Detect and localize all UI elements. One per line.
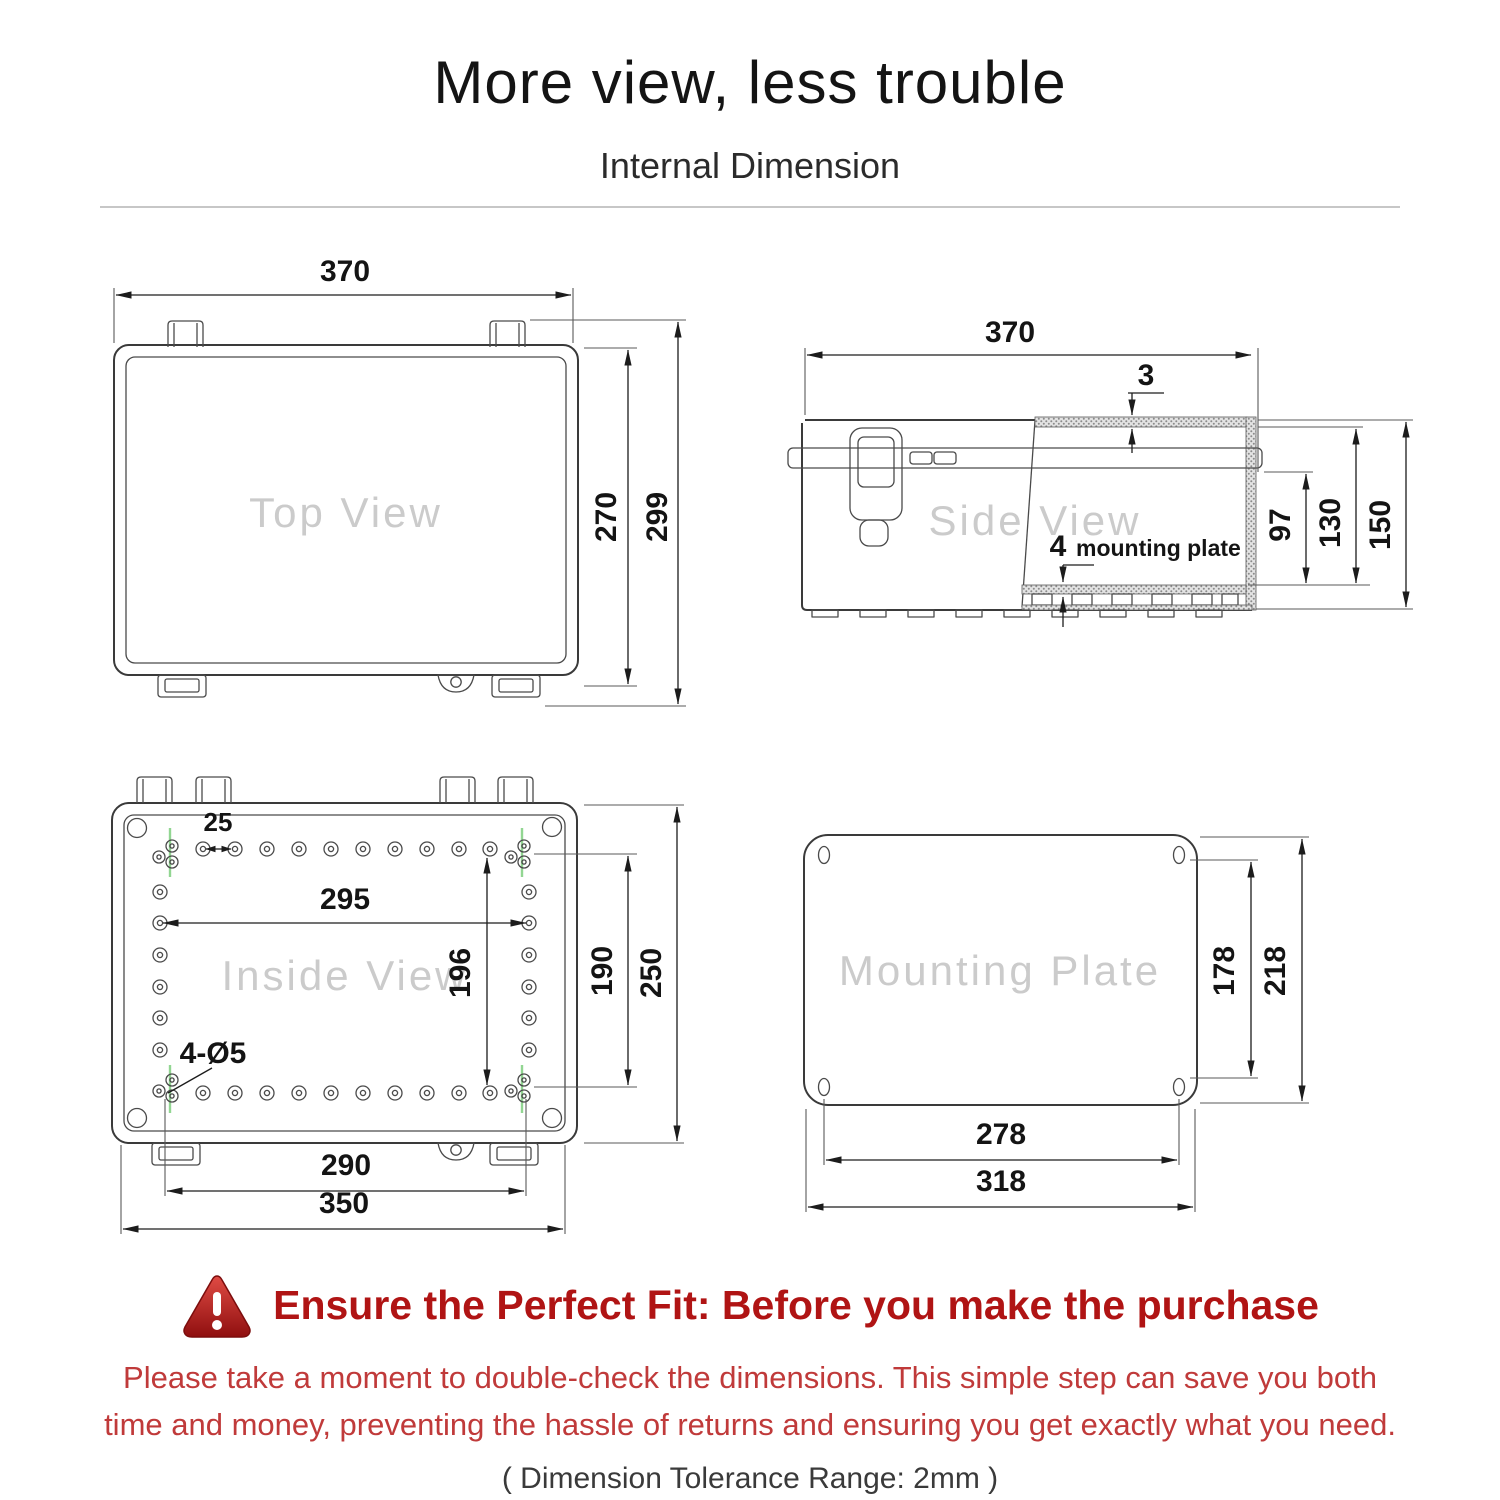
warning-icon [181, 1272, 253, 1338]
dim-inside-mount-holes: 4-Ø5 [168, 1037, 246, 1093]
dim-top-inner-height: 270 [584, 348, 637, 686]
header: More view, less trouble Internal Dimensi… [0, 48, 1500, 187]
dim-label: 350 [319, 1187, 369, 1220]
dim-label: 190 [586, 946, 619, 996]
dim-label: 270 [590, 492, 623, 542]
dim-label: 196 [444, 948, 477, 998]
dim-label: 250 [635, 948, 668, 998]
product-dimension-sheet: More view, less trouble Internal Dimensi… [0, 0, 1500, 1500]
dim-inside-mount-hole-width: 290 [165, 1099, 526, 1196]
side-view-drawing: Side View 370 3 97 [788, 316, 1413, 627]
top-view-watermark: Top View [249, 489, 443, 536]
dim-label: 318 [976, 1165, 1026, 1198]
dim-label: 4 [1050, 530, 1067, 563]
tolerance-note: ( Dimension Tolerance Range: 2mm ) [0, 1462, 1500, 1496]
dim-label: 299 [641, 492, 674, 542]
dim-plate-hole-height: 178 [1190, 860, 1258, 1078]
dim-label: 4-Ø5 [180, 1037, 247, 1070]
dim-label: 290 [321, 1149, 371, 1182]
page-subtitle: Internal Dimension [0, 145, 1500, 187]
mounting-plate-drawing: Mounting Plate 178 218 278 [804, 835, 1309, 1212]
dim-inside-hole-pitch: 25 [204, 807, 233, 849]
dimension-drawing: Top View 370 270 299 [0, 225, 1500, 1285]
dim-label: 370 [985, 316, 1035, 349]
inside-view-watermark: Inside View [221, 952, 468, 999]
inside-view-drawing: Inside View 25 295 196 190 [112, 777, 684, 1234]
dim-inside-hole-span-height: 196 [444, 858, 487, 1085]
dim-label: 3 [1138, 359, 1155, 392]
dim-label: 218 [1259, 946, 1292, 996]
dim-label: 25 [204, 807, 233, 837]
dim-side-inner-depth: 130 [1258, 427, 1363, 583]
dim-label: 178 [1208, 946, 1241, 996]
warning-body-line1: Please take a moment to double-check the… [0, 1354, 1500, 1401]
dim-inside-mount-hole-height: 190 [534, 854, 637, 1087]
dim-label: 97 [1264, 508, 1297, 541]
dim-side-depth-below-lid: 97 [1248, 472, 1370, 585]
dim-label: 130 [1314, 498, 1347, 548]
dim-label: 150 [1364, 500, 1397, 550]
dim-side-lid-thickness: 3 [1128, 359, 1164, 453]
warning-body-line2: time and money, preventing the hassle of… [0, 1401, 1500, 1448]
warning-section: Ensure the Perfect Fit: Before you make … [0, 1272, 1500, 1496]
dim-label: 295 [320, 883, 370, 916]
dim-top-width: 370 [114, 255, 573, 343]
warning-heading: Ensure the Perfect Fit: Before you make … [273, 1282, 1319, 1329]
mounting-plate-watermark: Mounting Plate [839, 947, 1161, 994]
warning-body: Please take a moment to double-check the… [0, 1354, 1500, 1448]
dim-inside-hole-span-width: 295 [163, 883, 526, 923]
top-view-drawing: Top View 370 270 299 [114, 255, 686, 706]
plate-label: mounting plate [1076, 535, 1241, 561]
page-title: More view, less trouble [0, 48, 1500, 117]
dim-plate-hole-width: 278 [824, 1099, 1179, 1165]
dim-label: 370 [320, 255, 370, 288]
header-divider [100, 206, 1400, 208]
dim-label: 278 [976, 1118, 1026, 1151]
